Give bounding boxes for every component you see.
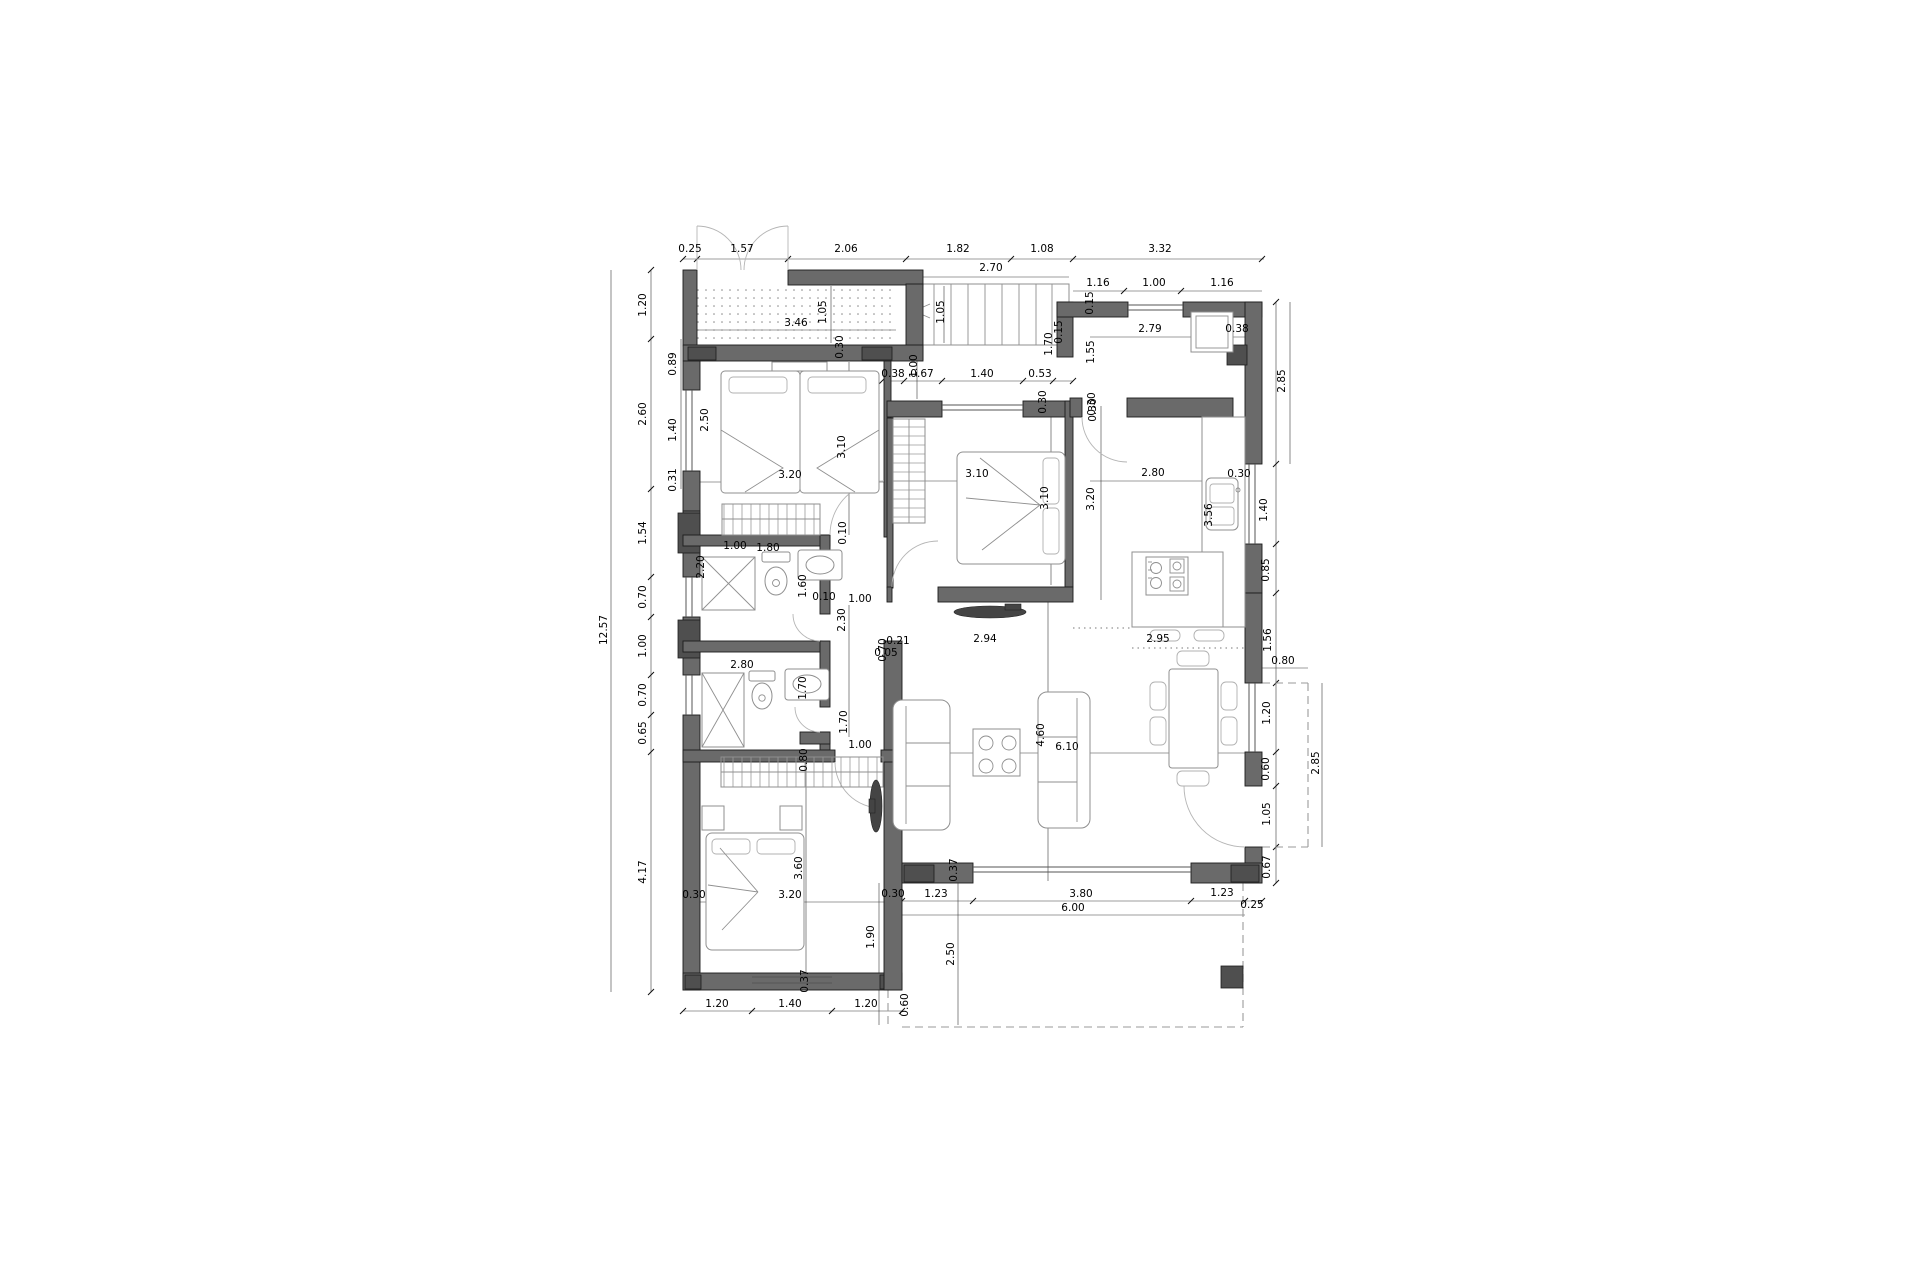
dimension-label: 0.25 xyxy=(678,243,701,255)
dimension-label: 1.70 xyxy=(838,710,850,733)
dimension-label: 6.10 xyxy=(1055,741,1078,753)
dimension-label: 0.53 xyxy=(1028,368,1051,380)
terrace-pillar xyxy=(1221,966,1243,988)
dimension-label: 2.80 xyxy=(1141,467,1164,479)
dimension-label: 0.60 xyxy=(899,993,911,1016)
dimension-label: 0.89 xyxy=(667,352,679,375)
sofa-icon xyxy=(893,700,950,830)
dimension-label: 0.15 xyxy=(1084,291,1096,314)
dimension-label: 0.37 xyxy=(799,969,811,992)
dimension-label: 0.30 xyxy=(1227,468,1250,480)
dimension-label: 2.50 xyxy=(699,408,711,431)
sofa-icon xyxy=(1038,692,1090,828)
dimension-label: 3.60 xyxy=(793,856,805,879)
dimension-label: 1.40 xyxy=(1258,498,1270,521)
dimension-label: 0.30 xyxy=(881,888,904,900)
dimension-label: 1.56 xyxy=(1262,628,1274,652)
shower-icon xyxy=(702,673,744,747)
dimension-label: 0.60 xyxy=(1260,757,1272,780)
dimension-label: 1.55 xyxy=(1085,340,1097,363)
dimension-label: 1.16 xyxy=(1086,277,1110,289)
dimension-label: 1.80 xyxy=(756,542,779,554)
dimension-label: 0.10 xyxy=(812,591,835,603)
window-bedroom2-top xyxy=(942,405,1023,410)
dimension-label: 1.00 xyxy=(848,739,871,751)
window-bath2-left xyxy=(686,675,692,715)
dimension-label: 2.94 xyxy=(973,633,997,645)
window-living-bottom xyxy=(973,867,1191,872)
dimension-label: 0.25 xyxy=(1240,899,1263,911)
dimension-label: 0.70 xyxy=(637,683,649,706)
door-swing-icon xyxy=(892,541,938,587)
dimension-label: 2.70 xyxy=(979,262,1002,274)
dimension-label: 3.10 xyxy=(965,468,988,480)
dimension-label: 3.32 xyxy=(1148,243,1171,255)
dimension-label: 0.67 xyxy=(1261,855,1273,878)
dimension-label: 2.80 xyxy=(730,659,753,671)
dimension-label: 3.20 xyxy=(778,469,801,481)
dining-table-icon xyxy=(1150,651,1237,786)
dimension-label: 3.80 xyxy=(1069,888,1092,900)
door-swing-icon xyxy=(1082,417,1127,462)
dimension-label: 1.05 xyxy=(935,300,947,323)
dimension-label: 4.17 xyxy=(637,860,649,883)
window-bedroom1-left xyxy=(686,390,692,471)
dimension-label: 1.00 xyxy=(908,354,920,377)
dimension-label: 2.60 xyxy=(637,402,649,425)
toilet-icon xyxy=(762,552,790,595)
dimension-label: 1.23 xyxy=(1210,887,1233,899)
dimension-label: 1.00 xyxy=(848,593,871,605)
dimension-label: 0.65 xyxy=(637,721,649,744)
dimension-label: 1.57 xyxy=(730,243,753,255)
dimension-label: 0.30 xyxy=(834,335,846,358)
window-kitchen-top xyxy=(1128,305,1183,310)
dimension-label: 1.20 xyxy=(854,998,877,1010)
dimension-label: 1.16 xyxy=(1210,277,1234,289)
tv-icon xyxy=(954,604,1026,618)
dimension-label: 1.20 xyxy=(705,998,728,1010)
dimension-label: 0.80 xyxy=(1271,655,1294,667)
dimension-label: 3.20 xyxy=(1085,487,1097,510)
dimension-label: 3.10 xyxy=(836,435,848,458)
dimension-label: 0.15 xyxy=(1053,320,1065,343)
dimension-label: 1.82 xyxy=(946,243,969,255)
dimension-label: 0.30 xyxy=(1087,398,1099,421)
dimension-label: 0.05 xyxy=(874,647,897,659)
shower-icon xyxy=(702,557,755,610)
dimension-label: 1.40 xyxy=(667,418,679,441)
floor-plan-canvas: 0.251.572.061.821.083.322.701.161.001.16… xyxy=(0,0,1920,1280)
dimension-label: 2.06 xyxy=(834,243,858,255)
dimension-label: 1.08 xyxy=(1030,243,1053,255)
floor-plan-page: 0.251.572.061.821.083.322.701.161.001.16… xyxy=(0,0,1920,1280)
dimension-label: 3.10 xyxy=(1039,486,1051,509)
dimension-label: 0.38 xyxy=(881,368,904,380)
dimension-label: 2.20 xyxy=(695,555,707,578)
dimension-label: 1.00 xyxy=(1142,277,1165,289)
cooktop-icon xyxy=(1146,557,1188,595)
dimension-label: 0.30 xyxy=(1037,390,1049,413)
dimension-label: 0.21 xyxy=(886,635,909,647)
window-bath1-left xyxy=(686,577,692,617)
dimension-label: 1.20 xyxy=(637,293,649,316)
dimension-label: 2.85 xyxy=(1310,751,1322,774)
dimension-label: 1.40 xyxy=(970,368,993,380)
window-living-right xyxy=(1249,683,1255,752)
dimension-label: 1.23 xyxy=(924,888,947,900)
dimension-label: 2.95 xyxy=(1146,633,1169,645)
dimension-label: 6.00 xyxy=(1061,902,1084,914)
dimension-label: 0.85 xyxy=(1260,558,1272,581)
dimension-label: 2.79 xyxy=(1138,323,1161,335)
tv-icon xyxy=(869,780,882,832)
dimension-label: 1.05 xyxy=(1261,802,1273,825)
dimension-label: 0.10 xyxy=(837,521,849,544)
dimension-label: 1.54 xyxy=(637,521,649,545)
wardrobe-icon xyxy=(893,419,925,523)
dimension-label: 1.90 xyxy=(865,925,877,948)
dimension-label: 0.30 xyxy=(682,889,705,901)
entry-porch xyxy=(697,286,896,343)
dimension-label: 0.31 xyxy=(667,468,679,491)
dimension-label: 4.60 xyxy=(1035,723,1047,746)
dimension-label: 2.30 xyxy=(836,608,848,631)
dimension-label: 1.70 xyxy=(797,676,809,699)
door-swing-icon xyxy=(1184,786,1245,847)
dimension-label: 1.00 xyxy=(637,634,649,657)
dimension-label: 1.60 xyxy=(797,574,809,597)
dimension-label: 1.40 xyxy=(778,998,801,1010)
dimension-label: 3.46 xyxy=(784,317,808,329)
dimension-label: 0.70 xyxy=(637,585,649,608)
dimension-label: 3.20 xyxy=(778,889,801,901)
dimension-label: 1.00 xyxy=(723,540,746,552)
dimension-label: 0.37 xyxy=(948,858,960,881)
dimension-label: 3.56 xyxy=(1203,503,1215,527)
door-swing-icon xyxy=(795,707,820,732)
coffee-table-icon xyxy=(973,729,1020,776)
dimension-label: 1.20 xyxy=(1261,701,1273,724)
dimension-label: 0.38 xyxy=(1225,323,1248,335)
wardrobe-icon xyxy=(722,504,820,535)
dimension-label: 0.80 xyxy=(798,748,810,771)
dimension-label: 12.57 xyxy=(598,615,610,645)
dimension-label: 1.05 xyxy=(817,300,829,323)
door-swing-icon xyxy=(793,614,820,641)
dimension-label: 2.85 xyxy=(1276,369,1288,392)
dimension-label: 2.50 xyxy=(945,942,957,965)
toilet-icon xyxy=(749,671,775,709)
bed-icon xyxy=(702,806,804,950)
